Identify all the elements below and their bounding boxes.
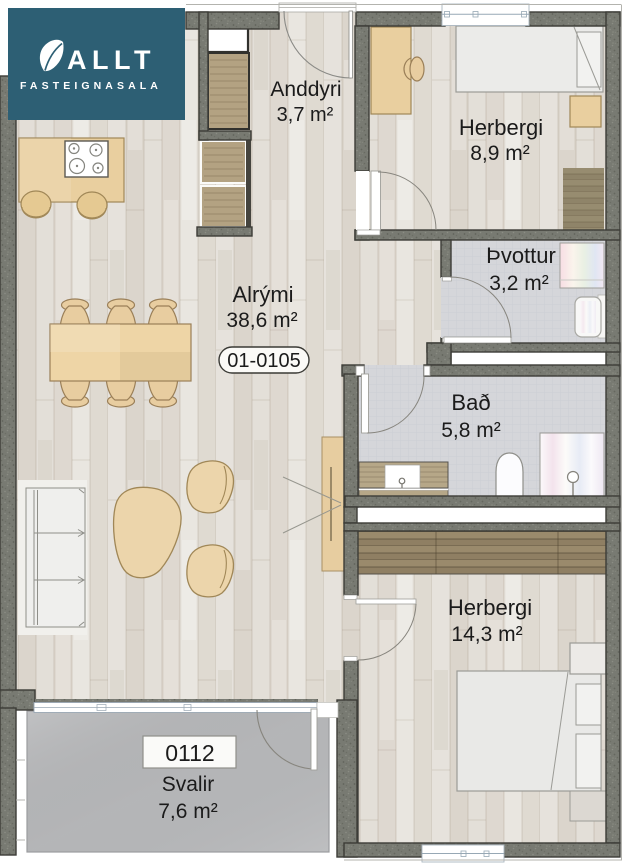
svg-text:Svalir: Svalir bbox=[162, 773, 215, 796]
svg-text:Anddyri: Anddyri bbox=[270, 78, 341, 101]
svg-text:5,8 m²: 5,8 m² bbox=[441, 419, 501, 442]
svg-text:14,3 m²: 14,3 m² bbox=[451, 623, 522, 646]
svg-text:8,9 m²: 8,9 m² bbox=[470, 142, 530, 165]
svg-text:Herbergi: Herbergi bbox=[448, 595, 532, 620]
svg-text:7,6 m²: 7,6 m² bbox=[158, 800, 218, 823]
svg-text:0112: 0112 bbox=[165, 740, 214, 766]
svg-text:Bað: Bað bbox=[451, 390, 490, 415]
svg-text:01-0105: 01-0105 bbox=[227, 350, 300, 372]
svg-text:ALLT: ALLT bbox=[67, 45, 156, 75]
svg-text:38,6 m²: 38,6 m² bbox=[226, 309, 297, 332]
svg-text:Herbergi: Herbergi bbox=[459, 115, 543, 140]
svg-text:3,7 m²: 3,7 m² bbox=[277, 104, 334, 126]
svg-text:3,2 m²: 3,2 m² bbox=[489, 272, 549, 295]
svg-text:Þvottur: Þvottur bbox=[486, 243, 556, 268]
svg-text:FASTEIGNASALA: FASTEIGNASALA bbox=[20, 80, 162, 92]
svg-text:Alrými: Alrými bbox=[232, 282, 293, 307]
